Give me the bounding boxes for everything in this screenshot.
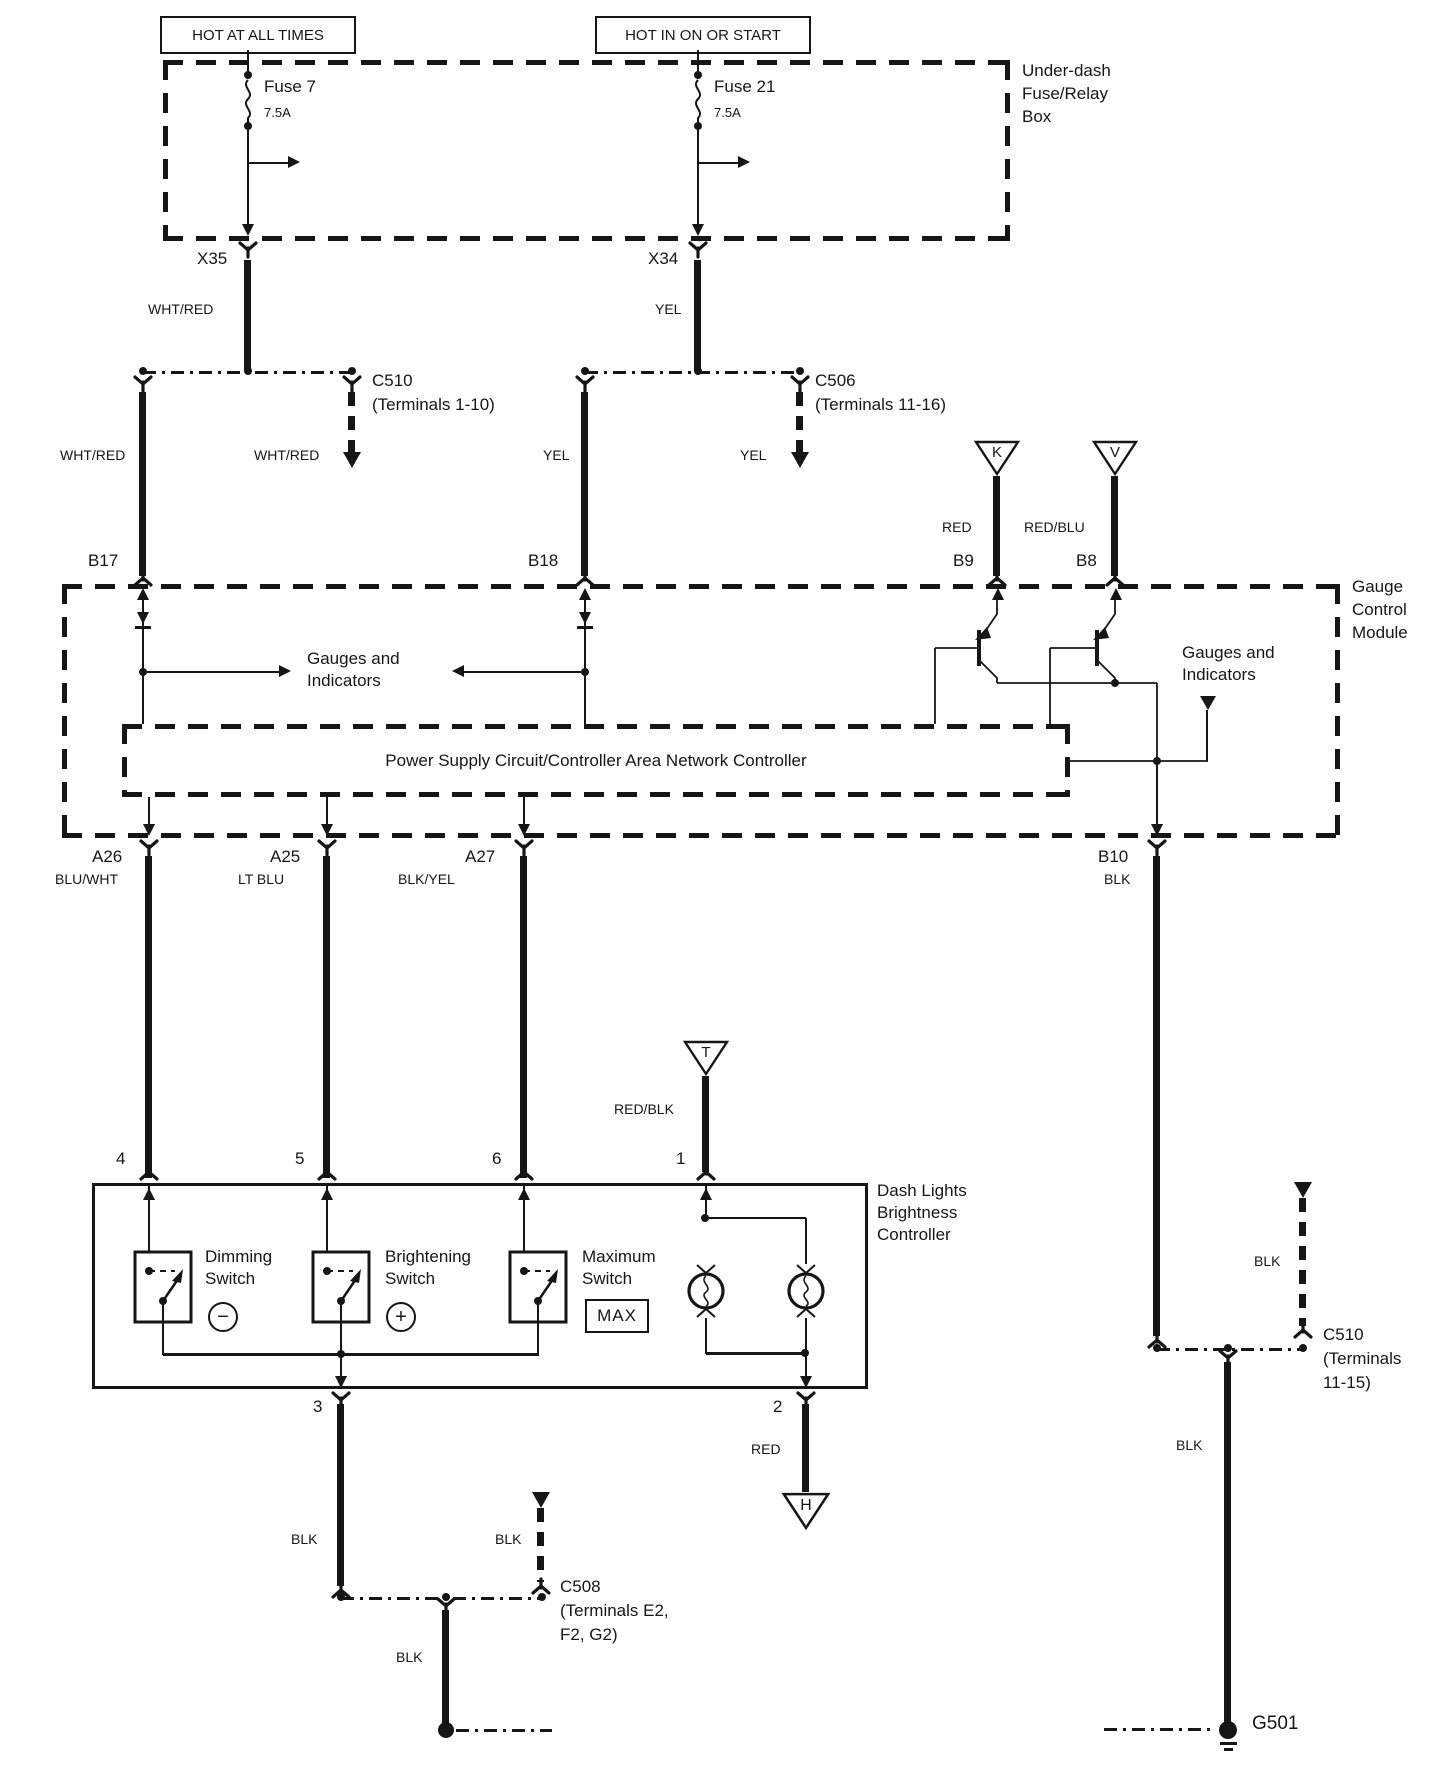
minus-icon: − (208, 1302, 238, 1332)
connector-pin-icon (317, 840, 337, 856)
arrow-down-icon (1200, 696, 1216, 710)
ground-tick (1224, 1748, 1233, 1751)
branch-wire (248, 162, 288, 164)
connector-pin-icon (514, 1164, 534, 1180)
power-source-box-left: HOT AT ALL TIMES (160, 16, 356, 54)
wire-color-label: RED (751, 1442, 781, 1457)
fuse-box-border-right (1005, 60, 1010, 241)
splice-line (1104, 1728, 1216, 1731)
pin-label-5: 5 (295, 1150, 304, 1168)
svg-text:T: T (701, 1044, 710, 1061)
diode-bar (135, 626, 151, 629)
junction-dot (581, 367, 589, 375)
fuse-rating: 7.5A (264, 106, 291, 120)
wire (706, 1217, 806, 1219)
triangle-connector-k: K (974, 440, 1020, 476)
ground-dot (1219, 1721, 1237, 1739)
module-border-bottom (62, 833, 1340, 838)
connector-pin-icon (139, 1164, 159, 1180)
arrow-left-icon (452, 665, 464, 677)
fuse-name: Fuse 21 (714, 78, 775, 96)
wire (697, 130, 699, 226)
pin-label-3: 3 (313, 1398, 322, 1416)
svg-text:H: H (800, 1497, 811, 1514)
connector-terminals: (Terminals 11-16) (815, 396, 946, 414)
max-label: MAX (597, 1306, 637, 1326)
wire-whtred-b17 (139, 392, 146, 576)
pin-label-b8: B8 (1076, 552, 1097, 570)
arrow-right-icon (288, 156, 300, 168)
junction-dot (1299, 1344, 1307, 1352)
junction-dot (694, 71, 702, 79)
wire (143, 671, 279, 673)
pin-label-x34: X34 (648, 250, 678, 268)
arrow-down-icon (532, 1492, 550, 1508)
pin-label-b17: B17 (88, 552, 118, 570)
junction-dot (1153, 1344, 1161, 1352)
fuse-box-title-3: Box (1022, 108, 1051, 126)
module-title-3: Module (1352, 624, 1408, 642)
wire (706, 1352, 806, 1355)
wire-whtred (244, 260, 251, 370)
arrow-down-icon (343, 452, 361, 468)
gauges-indicators-label: Indicators (1182, 666, 1256, 684)
arrow-up-icon (992, 588, 1004, 600)
connector-terminals: 11-15) (1323, 1374, 1371, 1392)
diode-bar (577, 626, 593, 629)
arrow-down-icon (321, 824, 333, 836)
gauges-indicators-label: Gauges and (1182, 644, 1275, 662)
fuse-box-border-left (163, 60, 168, 241)
splice-dot (438, 1722, 454, 1738)
connector-pin-icon (133, 376, 153, 392)
wire-ltblu (323, 856, 330, 1178)
wire-bluwht (145, 856, 152, 1178)
branch-wire (698, 162, 738, 164)
wire-color-label: WHT/RED (60, 448, 125, 463)
wire-redblk (702, 1076, 709, 1172)
max-badge: MAX (585, 1299, 649, 1333)
pin-label-6: 6 (492, 1150, 501, 1168)
connector-terminals: (Terminals E2, (560, 1602, 669, 1620)
gauges-indicators-label: Gauges and (307, 650, 400, 668)
psu-border-left (122, 724, 127, 797)
module-border-left (62, 584, 67, 838)
junction-dot (694, 367, 702, 375)
diode-icon (137, 612, 149, 624)
fuse-box-border-bottom (163, 236, 1010, 241)
wire-yel-b18 (581, 392, 588, 576)
wire-color-label: WHT/RED (148, 302, 213, 317)
wire-color-label: RED (942, 520, 972, 535)
lamp-icon (784, 1262, 828, 1318)
connector-terminals: F2, G2) (560, 1626, 618, 1644)
arrow-down-icon (1151, 824, 1163, 836)
pin-label-1: 1 (676, 1150, 685, 1168)
arrow-up-icon (143, 1188, 155, 1200)
arrow-down-icon (335, 1376, 347, 1388)
ground-label: G501 (1252, 1714, 1298, 1734)
connector-pin-icon (1293, 1322, 1313, 1338)
controller-title-3: Controller (877, 1226, 951, 1244)
gauges-indicators-label: Indicators (307, 672, 381, 690)
wire-blkyel (520, 856, 527, 1178)
wire-color-label: BLK (1176, 1438, 1202, 1453)
wire-blk-down (442, 1610, 449, 1724)
arrow-up-icon (321, 1188, 333, 1200)
fuse-box-title-2: Fuse/Relay (1022, 85, 1108, 103)
junction-dot (538, 1593, 546, 1601)
wire-color-label: RED/BLU (1024, 520, 1085, 535)
wire-redblu (1111, 476, 1118, 576)
wire (705, 1318, 707, 1354)
pin-label-b10: B10 (1098, 848, 1128, 866)
connector-pin-icon (575, 376, 595, 392)
brightening-switch-icon (311, 1250, 371, 1324)
connector-pin-icon (1147, 840, 1167, 856)
svg-text:V: V (1110, 444, 1120, 461)
arrow-up-icon (700, 1188, 712, 1200)
switch-label: Maximum (582, 1248, 656, 1266)
wire-red (993, 476, 1000, 576)
wire-color-label: BLK (1254, 1254, 1280, 1269)
arrow-down-icon (242, 224, 254, 236)
connector-label: C510 (1323, 1326, 1364, 1344)
junction-dot (348, 367, 356, 375)
wire (162, 1324, 164, 1355)
arrow-down-icon (800, 1376, 812, 1388)
triangle-connector-t: T (683, 1040, 729, 1076)
triangle-connector-v: V (1092, 440, 1138, 476)
arrow-down-icon (692, 224, 704, 236)
controller-title-1: Dash Lights (877, 1182, 967, 1200)
junction-dot (337, 1593, 345, 1601)
connector-terminals: (Terminals 1-10) (372, 396, 495, 414)
wire-color-label: BLK/YEL (398, 872, 455, 887)
switch-label: Switch (385, 1270, 435, 1288)
module-border-top (62, 584, 1340, 589)
arrow-right-icon (279, 665, 291, 677)
wire-blk-pin3 (337, 1404, 344, 1586)
svg-text:K: K (992, 444, 1002, 461)
junction-dot (581, 668, 589, 676)
wire-blk-c510-stub (1299, 1198, 1306, 1326)
connector-pin-icon (342, 376, 362, 392)
wire-whtred-c510 (348, 392, 355, 452)
pin-label-4: 4 (116, 1150, 125, 1168)
junction-dot (796, 367, 804, 375)
dimming-switch-icon (133, 1250, 193, 1324)
wire (537, 1322, 539, 1354)
fuse-icon (238, 80, 258, 124)
pin-label-x35: X35 (197, 250, 227, 268)
wire-color-label: YEL (543, 448, 569, 463)
connector-pin-icon (688, 242, 708, 258)
wire-yel (694, 260, 701, 370)
wire-color-label: BLK (495, 1532, 521, 1547)
connector-pin-icon (317, 1164, 337, 1180)
maximum-switch-icon (508, 1250, 568, 1324)
triangle-connector-h: H (781, 1492, 831, 1530)
diode-icon (579, 612, 591, 624)
arrow-up-icon (518, 1188, 530, 1200)
wire-red-pin2 (802, 1404, 809, 1492)
arrow-down-icon (791, 452, 809, 468)
pin-label-b9: B9 (953, 552, 974, 570)
controller-title-2: Brightness (877, 1204, 957, 1222)
psu-label: Power Supply Circuit/Controller Area Net… (132, 724, 1060, 797)
plus-icon: + (386, 1302, 416, 1332)
module-border-right (1335, 584, 1340, 838)
wire-color-label: LT BLU (238, 872, 284, 887)
arrow-down-icon (518, 824, 530, 836)
junction-dot (244, 122, 252, 130)
wire (1156, 761, 1158, 831)
fuse-box-title-1: Under-dash (1022, 62, 1111, 80)
connector-pin-icon (790, 376, 810, 392)
wire-color-label: WHT/RED (254, 448, 319, 463)
wire-color-label: RED/BLK (614, 1102, 674, 1117)
lamp-icon (684, 1262, 728, 1318)
arrow-right-icon (738, 156, 750, 168)
pin-label-b18: B18 (528, 552, 558, 570)
wire-blk-ground (1224, 1362, 1231, 1724)
connector-label: C510 (372, 372, 413, 390)
ground-tick (1220, 1742, 1237, 1745)
switch-label: Switch (582, 1270, 632, 1288)
pin-label-2: 2 (773, 1398, 782, 1416)
wire (464, 671, 585, 673)
fuse-icon (688, 80, 708, 124)
wire-color-label: BLU/WHT (55, 872, 118, 887)
wire (247, 130, 249, 226)
switch-label: Dimming (205, 1248, 272, 1266)
power-source-label: HOT IN ON OR START (625, 27, 781, 44)
wire-yel-c506 (796, 392, 803, 452)
wire-color-label: BLK (396, 1650, 422, 1665)
connector-terminals: (Terminals (1323, 1350, 1401, 1368)
wire (1206, 710, 1208, 761)
bus-wire (163, 1353, 539, 1356)
arrow-up-icon (1110, 588, 1122, 600)
junction-dot (244, 367, 252, 375)
connector-label: C506 (815, 372, 856, 390)
wire-color-label: BLK (1104, 872, 1130, 887)
wire-color-label: YEL (740, 448, 766, 463)
splice-line (585, 371, 801, 374)
arrow-down-icon (1294, 1182, 1312, 1198)
module-title-1: Gauge (1352, 578, 1403, 596)
splice-line (456, 1729, 552, 1732)
fuse-rating: 7.5A (714, 106, 741, 120)
switch-label: Switch (205, 1270, 255, 1288)
junction-dot (694, 122, 702, 130)
module-title-2: Control (1352, 601, 1407, 619)
fuse-box-border-top (163, 60, 1010, 65)
switch-label: Brightening (385, 1248, 471, 1266)
fuse-name: Fuse 7 (264, 78, 316, 96)
pin-label-a26: A26 (92, 848, 122, 866)
wire-blk-c508-stub (537, 1508, 544, 1582)
pin-label-a27: A27 (465, 848, 495, 866)
arrow-down-icon (143, 824, 155, 836)
power-source-box-right: HOT IN ON OR START (595, 16, 811, 54)
junction-dot (244, 71, 252, 79)
power-source-label: HOT AT ALL TIMES (192, 27, 324, 44)
junction-dot (139, 367, 147, 375)
transistor-circuit (925, 590, 1220, 795)
wire-color-label: BLK (291, 1532, 317, 1547)
minus-symbol: − (217, 1306, 229, 1329)
connector-pin-icon (238, 242, 258, 258)
wiring-diagram: HOT AT ALL TIMES HOT IN ON OR START Unde… (0, 0, 1451, 1780)
connector-pin-icon (139, 840, 159, 856)
plus-symbol: + (395, 1306, 407, 1329)
connector-pin-icon (531, 1578, 551, 1594)
wire (805, 1218, 807, 1264)
wire-color-label: YEL (655, 302, 681, 317)
pin-label-a25: A25 (270, 848, 300, 866)
connector-pin-icon (514, 840, 534, 856)
connector-pin-icon (696, 1164, 716, 1180)
wire-blk-b10 (1153, 856, 1160, 1336)
connector-label: C508 (560, 1578, 601, 1596)
